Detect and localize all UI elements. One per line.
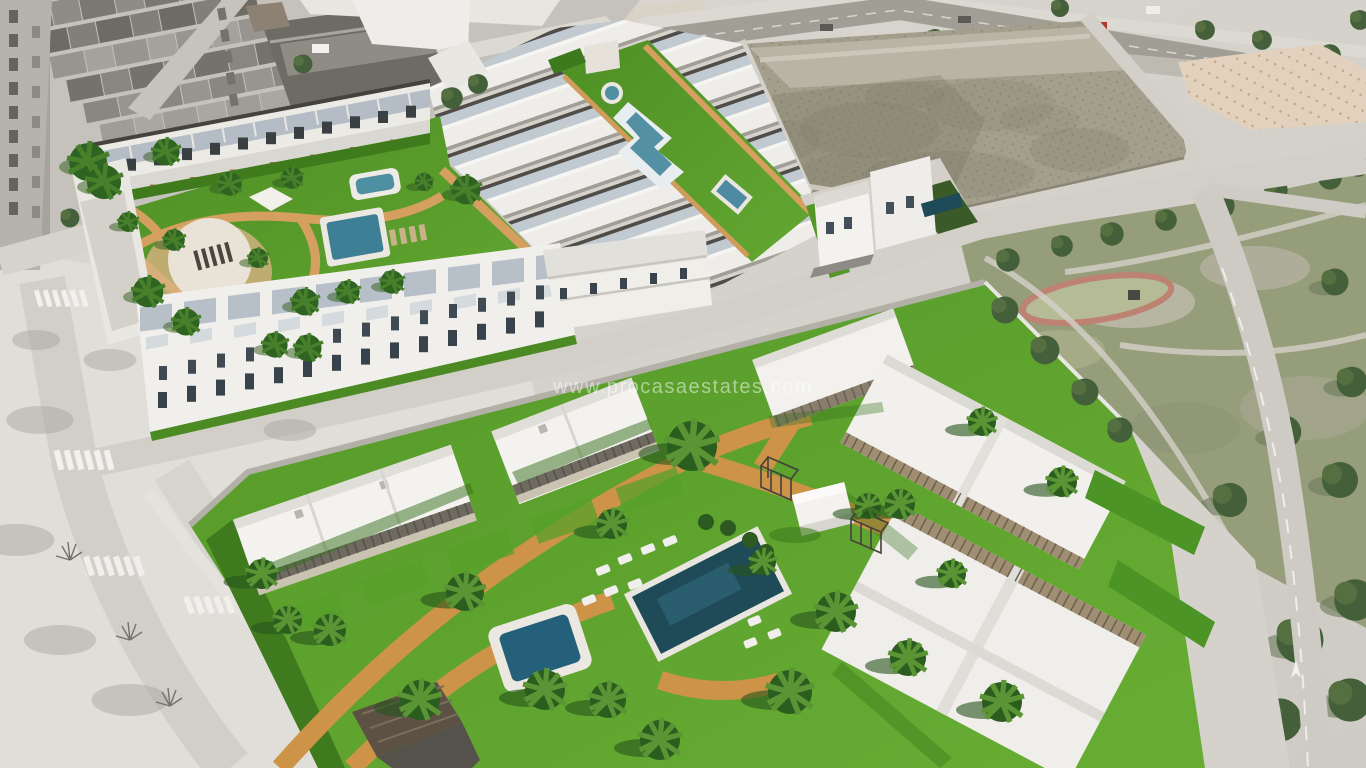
svg-text:www.procasaestates.com: www.procasaestates.com	[552, 376, 813, 398]
